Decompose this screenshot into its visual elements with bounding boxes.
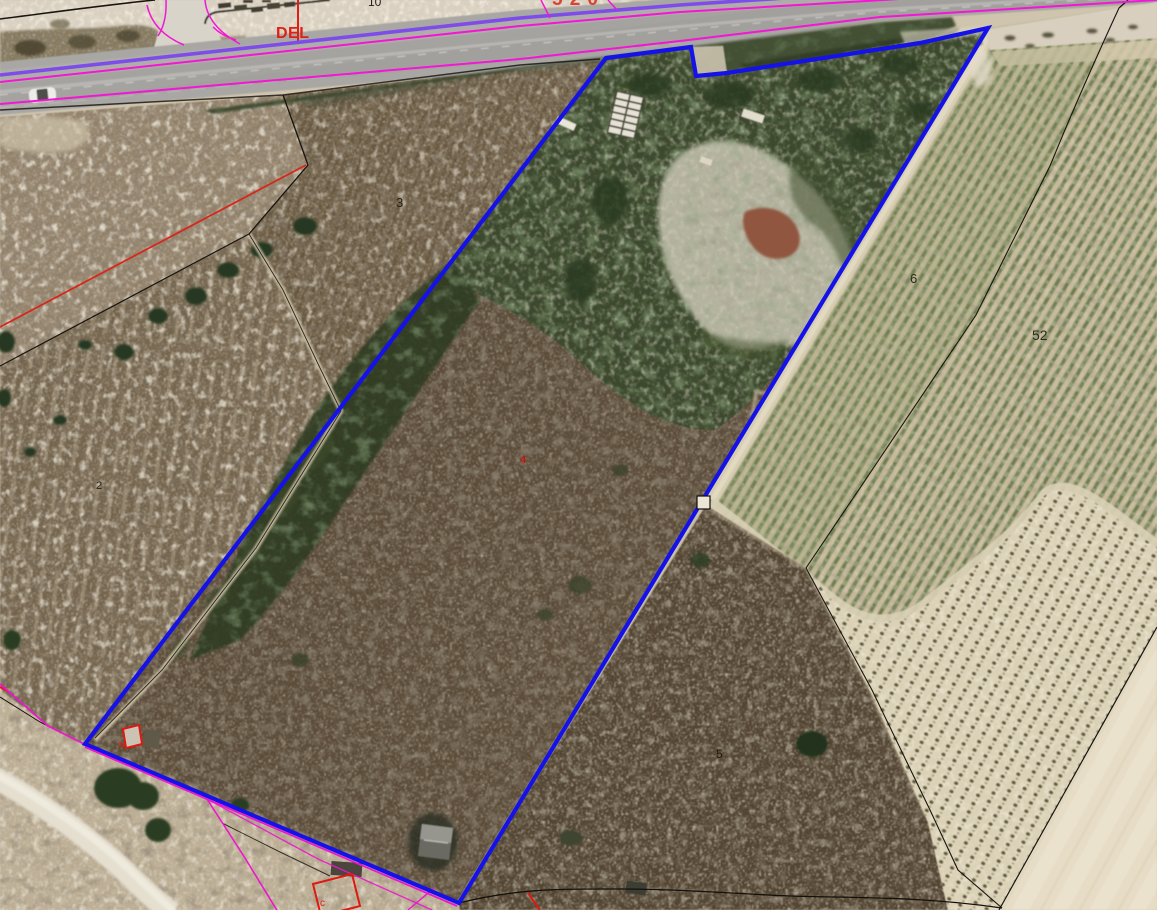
svg-text:5: 5 [716,747,723,761]
svg-text:10: 10 [368,0,382,9]
svg-text:4: 4 [520,454,527,466]
svg-text:c: c [320,898,325,909]
svg-text:3: 3 [396,195,403,210]
svg-text:b: b [119,740,124,750]
svg-text:520: 520 [552,0,598,10]
svg-text:2: 2 [96,480,102,492]
svg-text:DEL: DEL [276,25,309,42]
svg-text:52: 52 [1032,327,1048,343]
svg-text:6: 6 [910,271,917,286]
